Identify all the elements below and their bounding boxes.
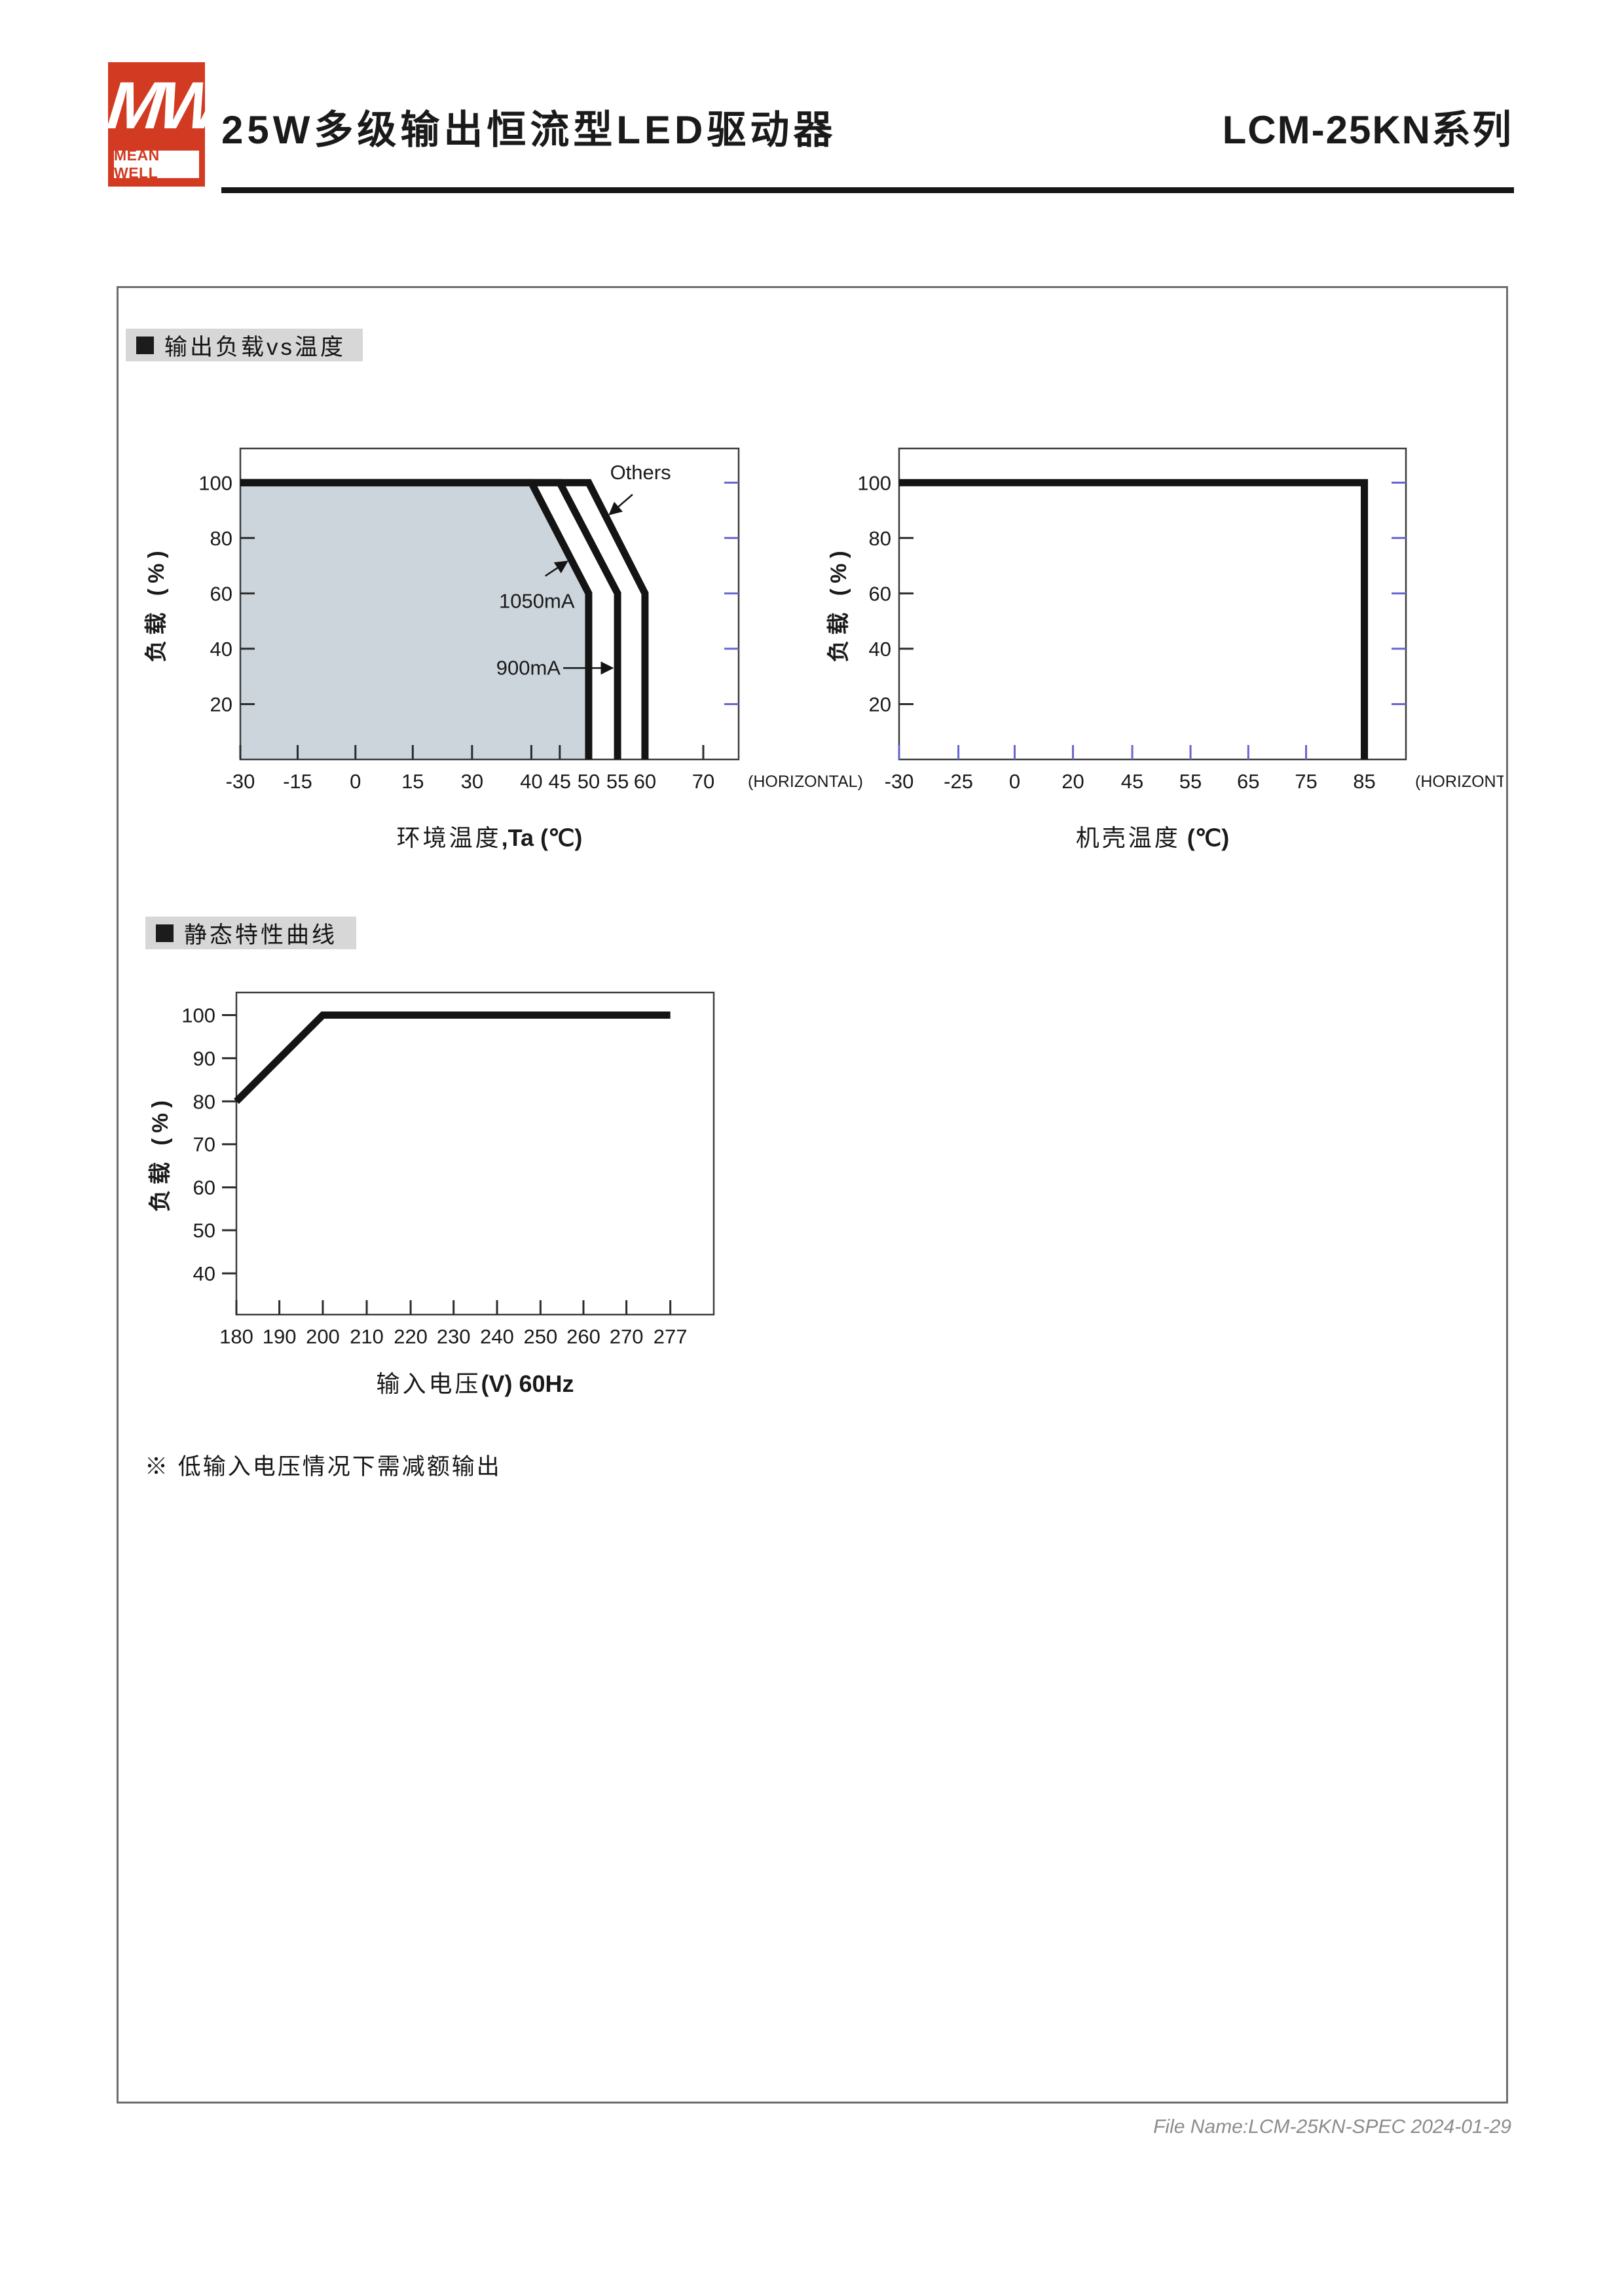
svg-text:40: 40 [193, 1262, 215, 1285]
svg-text:240: 240 [480, 1325, 514, 1348]
svg-text:-25: -25 [944, 770, 973, 793]
svg-text:75: 75 [1295, 770, 1317, 793]
svg-text:55: 55 [1179, 770, 1202, 793]
svg-text:60: 60 [869, 582, 891, 605]
svg-text:-30: -30 [885, 770, 914, 793]
svg-text:90: 90 [193, 1047, 215, 1070]
svg-text:85: 85 [1353, 770, 1375, 793]
svg-text:输入电压(V) 60Hz: 输入电压(V) 60Hz [376, 1370, 574, 1397]
svg-text:机壳温度 (℃): 机壳温度 (℃) [1076, 824, 1229, 851]
svg-text:80: 80 [210, 527, 232, 550]
svg-text:50: 50 [193, 1219, 215, 1242]
svg-text:40: 40 [869, 638, 891, 661]
svg-text:-15: -15 [283, 770, 312, 793]
svg-text:65: 65 [1237, 770, 1259, 793]
svg-text:70: 70 [193, 1133, 215, 1156]
svg-text:负载 (%): 负载 (%) [144, 545, 169, 662]
svg-text:180: 180 [219, 1325, 253, 1348]
title-rule [221, 187, 1514, 193]
svg-text:230: 230 [437, 1325, 471, 1348]
svg-text:0: 0 [350, 770, 361, 793]
svg-text:环境温度,Ta (℃): 环境温度,Ta (℃) [397, 824, 583, 851]
series-title: LCM-25KN系列 [1223, 98, 1513, 155]
svg-text:-30: -30 [226, 770, 255, 793]
svg-text:200: 200 [306, 1325, 340, 1348]
svg-text:15: 15 [401, 770, 424, 793]
section-title: 静态特性曲线 [184, 917, 337, 950]
svg-text:190: 190 [263, 1325, 297, 1348]
svg-text:260: 260 [566, 1325, 600, 1348]
svg-text:220: 220 [394, 1325, 428, 1348]
section-square-icon [156, 924, 174, 942]
svg-text:20: 20 [869, 693, 891, 716]
svg-text:100: 100 [198, 471, 232, 494]
ambient-derating-chart: -30-150153040455055607020406080100Others… [131, 419, 884, 877]
svg-text:45: 45 [549, 770, 571, 793]
svg-text:0: 0 [1009, 770, 1020, 793]
meanwell-logo-mw-glyph: MW [103, 64, 209, 147]
svg-text:60: 60 [210, 582, 232, 605]
svg-text:60: 60 [634, 770, 656, 793]
svg-text:100: 100 [181, 1004, 215, 1027]
svg-text:60: 60 [193, 1176, 215, 1199]
case-temp-derating-chart: -30-25020455565758520406080100(HORIZONTA… [783, 419, 1504, 877]
section-title: 输出负载vs温度 [164, 329, 346, 362]
input-voltage-derating-chart: 1801902002102202302402502602702774050607… [131, 969, 747, 1480]
section-square-icon [136, 337, 154, 354]
svg-text:270: 270 [610, 1325, 644, 1348]
file-name-footer: File Name:LCM-25KN-SPEC 2024-01-29 [1153, 2116, 1511, 2138]
svg-text:20: 20 [1061, 770, 1084, 793]
section-header-static-characteristic: 静态特性曲线 [145, 917, 356, 949]
svg-text:45: 45 [1121, 770, 1143, 793]
svg-text:210: 210 [350, 1325, 384, 1348]
derating-note: ※ 低输入电压情况下需减额输出 [145, 1448, 502, 1482]
svg-text:50: 50 [578, 770, 600, 793]
svg-text:277: 277 [654, 1325, 688, 1348]
svg-text:70: 70 [692, 770, 714, 793]
svg-text:(HORIZONTAL): (HORIZONTAL) [1415, 773, 1504, 791]
section-header-output-load-vs-temp: 输出负载vs温度 [126, 329, 363, 361]
svg-text:负载 (%): 负载 (%) [148, 1095, 173, 1212]
svg-text:20: 20 [210, 693, 232, 716]
meanwell-logo: MW MEAN WELL [108, 62, 205, 187]
svg-text:80: 80 [193, 1090, 215, 1113]
svg-text:负载 (%): 负载 (%) [826, 545, 851, 662]
svg-text:80: 80 [869, 527, 891, 550]
content-border-box: 输出负载vs温度 -30-150153040455055607020406080… [117, 286, 1508, 2104]
svg-text:250: 250 [524, 1325, 558, 1348]
svg-text:900mA: 900mA [496, 656, 561, 679]
svg-text:100: 100 [857, 471, 891, 494]
meanwell-logo-text: MEAN WELL [114, 147, 199, 182]
meanwell-logo-banner: MEAN WELL [114, 151, 199, 178]
svg-text:1050mA: 1050mA [499, 590, 575, 613]
svg-text:40: 40 [520, 770, 542, 793]
datasheet-page: MW MEAN WELL 25W多级输出恒流型LED驱动器 LCM-25KN系列… [0, 0, 1624, 2296]
page-title: 25W多级输出恒流型LED驱动器 [221, 98, 836, 155]
svg-text:40: 40 [210, 638, 232, 661]
svg-text:55: 55 [606, 770, 629, 793]
svg-text:30: 30 [461, 770, 483, 793]
svg-text:Others: Others [610, 461, 671, 484]
